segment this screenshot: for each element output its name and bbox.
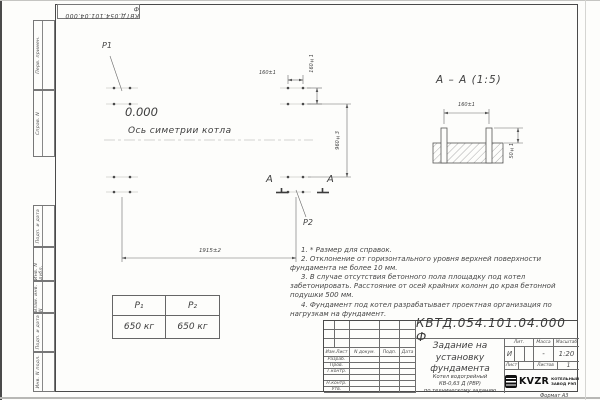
elevation-label: 0.000 bbox=[125, 105, 158, 119]
note-item: 1. * Размер для справок. bbox=[290, 246, 558, 255]
mass-value: - bbox=[533, 347, 553, 362]
format-label: Формат А3 bbox=[540, 393, 568, 399]
scale-header: Масштаб bbox=[553, 339, 579, 347]
section-letter-left: А bbox=[266, 174, 273, 185]
strip-box-podp-data-2: Подп. и дата bbox=[33, 313, 55, 352]
paper-edge-top bbox=[0, 0, 600, 1]
p2-label: P2 bbox=[303, 218, 313, 227]
section-dim-protrusion-label: 50±1 bbox=[509, 143, 515, 159]
tb-col-date: Дата bbox=[400, 348, 416, 357]
p1-label: P1 bbox=[102, 41, 112, 50]
tb-empty-cell bbox=[350, 387, 380, 393]
axis-label: Ось симетрии котла bbox=[128, 126, 232, 136]
dim-width-label: 960±3 bbox=[335, 131, 341, 150]
strip-box-perv-primen: Перв. примен. bbox=[33, 20, 55, 90]
drawing-sheet: КВТД.054.101.04.000 Ф Перв. примен. Спра… bbox=[0, 0, 600, 400]
tb-empty-cell bbox=[380, 387, 400, 393]
tb-row-utv: Утв. bbox=[324, 387, 350, 393]
section-letter-right: А bbox=[327, 174, 334, 185]
tb-col-sign: Подп. bbox=[380, 348, 400, 357]
tb-empty-cell bbox=[324, 339, 335, 348]
tb-empty-cell bbox=[400, 339, 416, 348]
tb-empty-cell bbox=[350, 339, 380, 348]
paper-edge-left bbox=[0, 0, 2, 400]
lit-header: Лит. bbox=[504, 339, 533, 347]
sheets-label: Листов bbox=[533, 362, 557, 370]
revision-grid: Изм.Лист N докум. Подп. Дата Разраб. Про… bbox=[324, 321, 416, 393]
lit-value: И bbox=[504, 347, 514, 362]
load-table-header-p2: P₂ bbox=[166, 296, 219, 316]
dim-length-label: 1915±2 bbox=[180, 248, 240, 254]
tb-col-docnum: N докум. bbox=[350, 348, 380, 357]
tb-empty-cell bbox=[400, 330, 416, 339]
sheet-value bbox=[518, 362, 533, 370]
strip-box-inv-dubl: Инв. N дубл. bbox=[33, 247, 55, 281]
strip-label: Инв. N подл. bbox=[36, 355, 41, 388]
document-name-box: Задание на установку фундамента Котел во… bbox=[416, 339, 504, 393]
load-table: P₁ P₂ 650 кг 650 кг bbox=[112, 295, 220, 339]
strip-label: Взам. инв. N bbox=[34, 282, 44, 312]
kvzr-logo-icon bbox=[505, 375, 517, 388]
title-block: Изм.Лист N докум. Подп. Дата Разраб. Про… bbox=[323, 320, 578, 392]
notes-block: 1. * Размер для справок. 2. Отклонение о… bbox=[290, 246, 558, 319]
paper-edge-bottom bbox=[0, 397, 600, 399]
section-title: А – А (1:5) bbox=[436, 74, 502, 86]
corner-stamp: КВТД.054.101.04.000 Ф bbox=[57, 4, 140, 19]
strip-box-inv-podl: Инв. N подл. bbox=[33, 352, 55, 392]
lit-cell-3 bbox=[524, 347, 533, 362]
tb-empty-cell bbox=[350, 321, 380, 330]
strip-box-vzam-inv: Взам. инв. N bbox=[33, 281, 55, 313]
corner-stamp-number: КВТД.054.101.04.000 Ф bbox=[58, 5, 139, 19]
note-item: 3. В случае отсутствия бетонного пола пл… bbox=[290, 273, 558, 300]
kvzr-logo-text: KVZR bbox=[519, 376, 549, 387]
dim-pitch-v-label: 160±1 bbox=[309, 54, 315, 73]
note-item: 2. Отклонение от горизонтального уровня … bbox=[290, 255, 558, 273]
scale-value: 1:20 bbox=[553, 347, 579, 362]
kvzr-logo: KVZR КОТЕЛЬНЫЙ ЗАВОД РЭП bbox=[504, 370, 579, 393]
dim-pitch-h-label: 160±1 bbox=[259, 70, 276, 76]
sheets-value: 1 bbox=[557, 362, 579, 370]
tb-empty-cell bbox=[380, 330, 400, 339]
strip-label: Справ. N bbox=[36, 112, 41, 135]
tb-col-izm-list: Изм.Лист bbox=[324, 348, 350, 357]
strip-label: Подп. и дата bbox=[36, 209, 41, 243]
drawing-number: КВТД.054.101.04.000 Ф bbox=[416, 321, 579, 339]
sheet-label: Лист bbox=[504, 362, 518, 370]
kvzr-logo-caption: КОТЕЛЬНЫЙ ЗАВОД РЭП bbox=[551, 377, 579, 386]
tb-empty-cell bbox=[324, 321, 335, 330]
tb-empty-cell bbox=[400, 387, 416, 393]
tb-empty-cell bbox=[380, 339, 400, 348]
tb-empty-cell bbox=[335, 339, 350, 348]
load-table-value-p2: 650 кг bbox=[166, 316, 219, 338]
tb-empty-cell bbox=[400, 321, 416, 330]
strip-label: Подп. и дата bbox=[36, 315, 41, 349]
paper-edge-right bbox=[585, 0, 586, 400]
tb-empty-cell bbox=[335, 321, 350, 330]
tb-empty-cell bbox=[350, 330, 380, 339]
mass-header: Масса bbox=[533, 339, 553, 347]
section-dim-pitch-label: 160±1 bbox=[444, 102, 489, 108]
strip-box-podp-data-1: Подп. и дата bbox=[33, 205, 55, 247]
strip-label: Перв. примен. bbox=[36, 36, 41, 74]
lit-cell-2 bbox=[514, 347, 524, 362]
load-table-header-p1: P₁ bbox=[113, 296, 166, 316]
tb-empty-cell bbox=[335, 330, 350, 339]
strip-label: Инв. N дубл. bbox=[34, 248, 44, 280]
document-title: Задание на установку фундамента bbox=[416, 341, 504, 376]
document-subtitle: Котел водогрейный КВ-0,63 Д (РВР) по тех… bbox=[416, 374, 504, 395]
tb-empty-cell bbox=[324, 330, 335, 339]
load-table-value-p1: 650 кг bbox=[113, 316, 166, 338]
strip-box-sprav-n: Справ. N bbox=[33, 90, 55, 157]
tb-empty-cell bbox=[380, 321, 400, 330]
